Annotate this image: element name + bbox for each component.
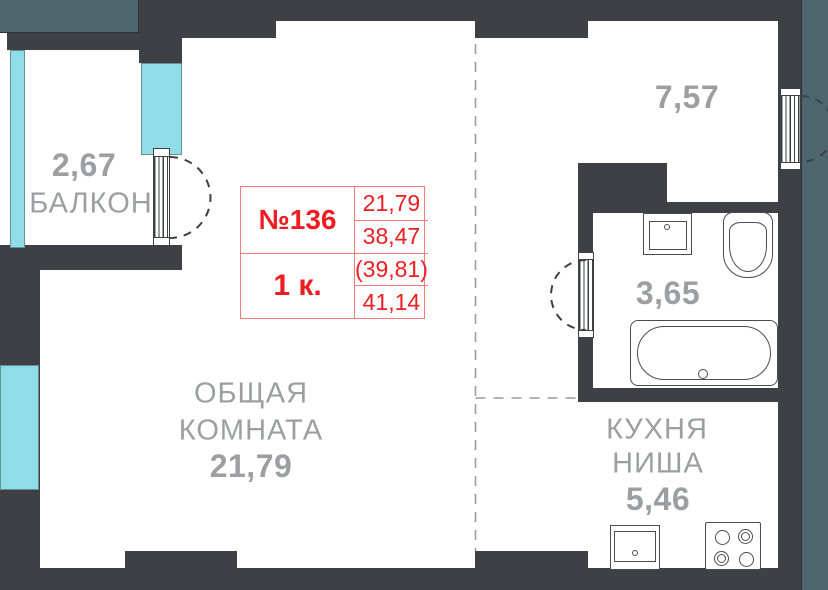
living-room-area: 21,79 (210, 450, 293, 482)
area-value: 38,47 (354, 220, 428, 253)
stove-burner (714, 551, 729, 566)
hall-area: 7,57 (655, 81, 719, 113)
wall (0, 568, 801, 590)
kitchen-sink-basin (614, 531, 656, 562)
kitchen-sink-drain (632, 550, 638, 556)
balcony-window (141, 63, 182, 155)
area-value: (39,81) (354, 253, 428, 286)
area-value: 41,14 (354, 285, 428, 318)
stove (705, 522, 761, 570)
apartment-info-card: №136 21,79 38,47 1 к. (39,81) 41,14 (240, 186, 425, 319)
entry-door (780, 95, 801, 163)
wall (276, 0, 475, 21)
wall (578, 163, 667, 213)
bathroom-door (578, 259, 594, 331)
balcony-side-window (10, 50, 25, 248)
kitchen-area: 5,46 (626, 483, 690, 515)
living-room-name-line1: ОБЩАЯ (194, 380, 308, 409)
bathroom-area: 3,65 (636, 277, 700, 309)
living-room-name-line2: КОМНАТА (179, 417, 323, 446)
wall (139, 0, 182, 63)
bathtub-drain (698, 369, 708, 379)
toilet-bowl (729, 222, 767, 272)
balcony-area: 2,67 (52, 149, 116, 181)
kitchen-name-line2: НИША (612, 450, 704, 479)
adjacent-area-right (801, 0, 828, 590)
floor-plan: 2,67 БАЛКОН ОБЩАЯ КОМНАТА 21,79 7,57 3,6… (0, 0, 828, 590)
balcony-door-jamb (153, 237, 170, 246)
kitchen-name-line1: КУХНЯ (606, 416, 708, 445)
wall (125, 551, 237, 590)
entry-door-jamb (780, 162, 801, 170)
bathroom-sink-faucet (664, 224, 670, 230)
apartment-type: 1 к. (241, 253, 354, 319)
bathroom-door-jamb (578, 330, 594, 338)
apartment-number: №136 (241, 187, 354, 253)
stove-burner (739, 552, 754, 567)
adjacent-area-top-left (0, 0, 139, 33)
balcony-door-swing (170, 157, 210, 238)
wall (182, 0, 276, 38)
wall (588, 0, 801, 21)
wall (7, 33, 139, 50)
stove-burner (715, 530, 730, 545)
area-value: 21,79 (354, 187, 428, 220)
stove-burner (738, 529, 753, 544)
balcony-name: БАЛКОН (29, 190, 152, 219)
wall (475, 0, 588, 38)
wall (578, 388, 780, 402)
living-room-window (0, 365, 39, 490)
balcony-door (153, 156, 170, 238)
wall (0, 245, 182, 270)
wall (475, 551, 588, 590)
